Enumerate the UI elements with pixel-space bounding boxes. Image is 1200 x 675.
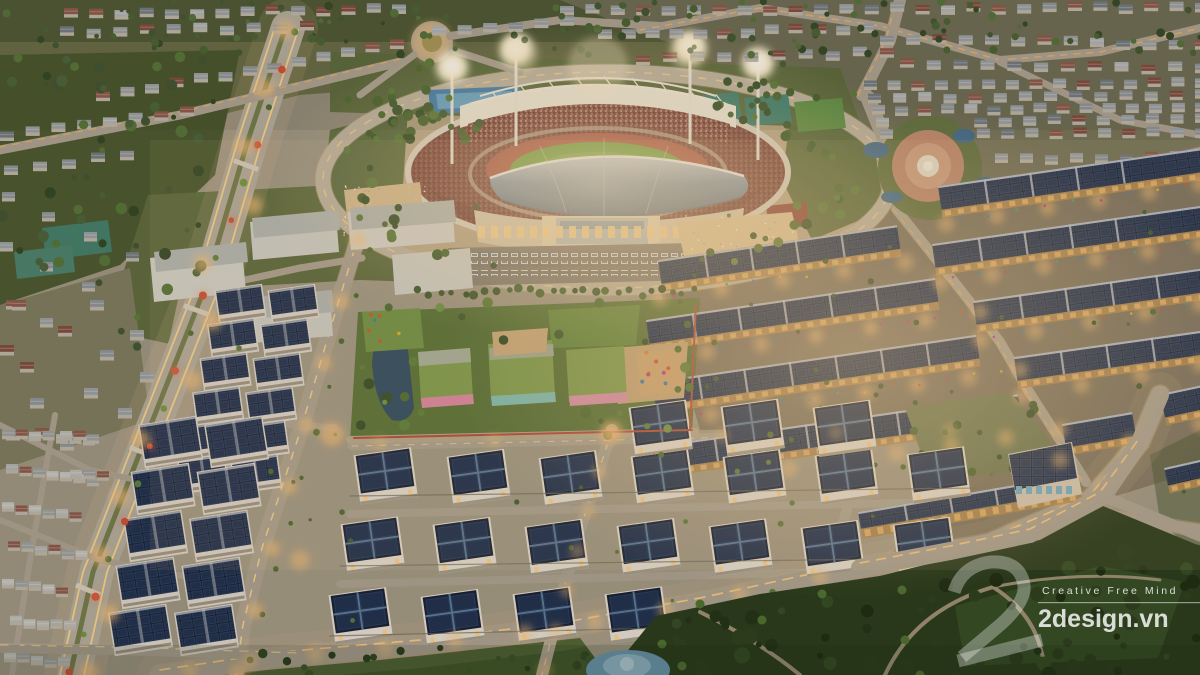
svg-text:Creative Free Mind: Creative Free Mind bbox=[1042, 585, 1178, 597]
svg-text:2design.vn: 2design.vn bbox=[1038, 605, 1169, 633]
